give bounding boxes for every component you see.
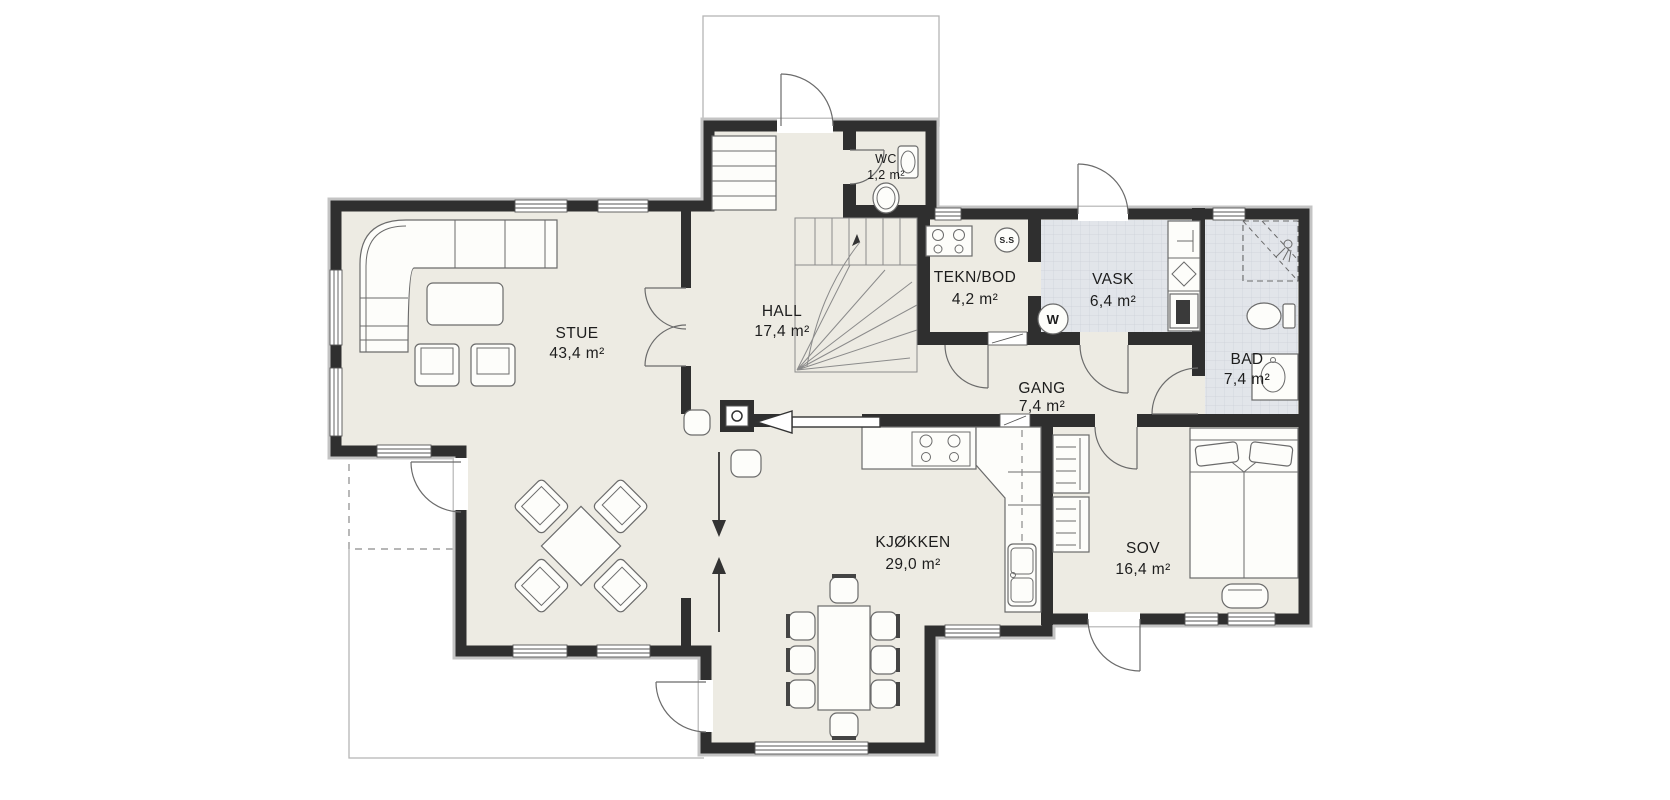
kjokken-area: 29,0 m²: [885, 556, 940, 573]
ss-mark-icon: S.S: [995, 228, 1019, 252]
window: [330, 368, 342, 436]
window: [755, 742, 868, 754]
side-table: [684, 410, 710, 435]
vask-area: 6,4 m²: [1090, 293, 1136, 310]
toilet-icon: [1247, 303, 1295, 329]
window: [1228, 613, 1275, 625]
window: [935, 208, 961, 220]
room-label-gang: GANG 7,4 m²: [1018, 380, 1065, 415]
threshold: [988, 332, 1027, 345]
kjokken-name: KJØKKEN: [875, 534, 950, 551]
pillow: [1195, 442, 1239, 467]
window: [1185, 613, 1218, 625]
ss-mark-label: S.S: [1000, 235, 1015, 245]
window: [597, 645, 650, 657]
window: [1213, 208, 1245, 220]
wc-area: 1,2 m²: [867, 168, 905, 182]
window: [513, 645, 567, 657]
kitchen-counter-north: [862, 427, 976, 469]
wardrobe: [1053, 497, 1089, 552]
bad-name: BAD: [1230, 351, 1263, 368]
gang-area: 7,4 m²: [1019, 398, 1065, 415]
gang-name: GANG: [1018, 380, 1065, 397]
washer-icon: W: [1038, 304, 1068, 334]
floor-plan: S.S W: [0, 0, 1670, 800]
washer-label: W: [1047, 312, 1060, 327]
coffee-table: [427, 283, 503, 325]
armchair: [415, 344, 459, 386]
armchair: [471, 344, 515, 386]
hall-name: HALL: [762, 303, 802, 320]
tekn-name: TEKN/BOD: [934, 269, 1016, 286]
window: [515, 200, 567, 212]
side-table: [731, 450, 761, 477]
porch-outline: [703, 16, 939, 126]
hall-area: 17,4 m²: [754, 323, 809, 340]
stue-area: 43,4 m²: [549, 345, 604, 362]
toilet-icon: [873, 183, 899, 213]
window: [598, 200, 648, 212]
window: [330, 270, 342, 345]
stue-name: STUE: [556, 325, 599, 342]
stove-icon: [926, 226, 972, 256]
vask-counter: [1168, 221, 1200, 331]
kitchen-sink-icon: [1008, 544, 1036, 606]
chimney: [720, 400, 754, 432]
wardrobe: [1053, 435, 1089, 493]
hall-wardrobe: [712, 136, 776, 210]
pillow: [1249, 442, 1293, 467]
vask-name: VASK: [1092, 271, 1134, 288]
threshold: [1000, 414, 1030, 427]
sov-name: SOV: [1126, 540, 1160, 557]
bench: [1222, 584, 1268, 608]
wc-name: WC: [875, 152, 897, 166]
window: [945, 625, 1000, 637]
window: [377, 445, 431, 457]
tekn-fixtures: S.S: [926, 226, 1019, 256]
floor-plan-svg: S.S W: [0, 0, 1670, 800]
tekn-area: 4,2 m²: [952, 291, 998, 308]
bed: [1190, 428, 1298, 578]
bad-area: 7,4 m²: [1224, 371, 1270, 388]
sov-area: 16,4 m²: [1115, 561, 1170, 578]
